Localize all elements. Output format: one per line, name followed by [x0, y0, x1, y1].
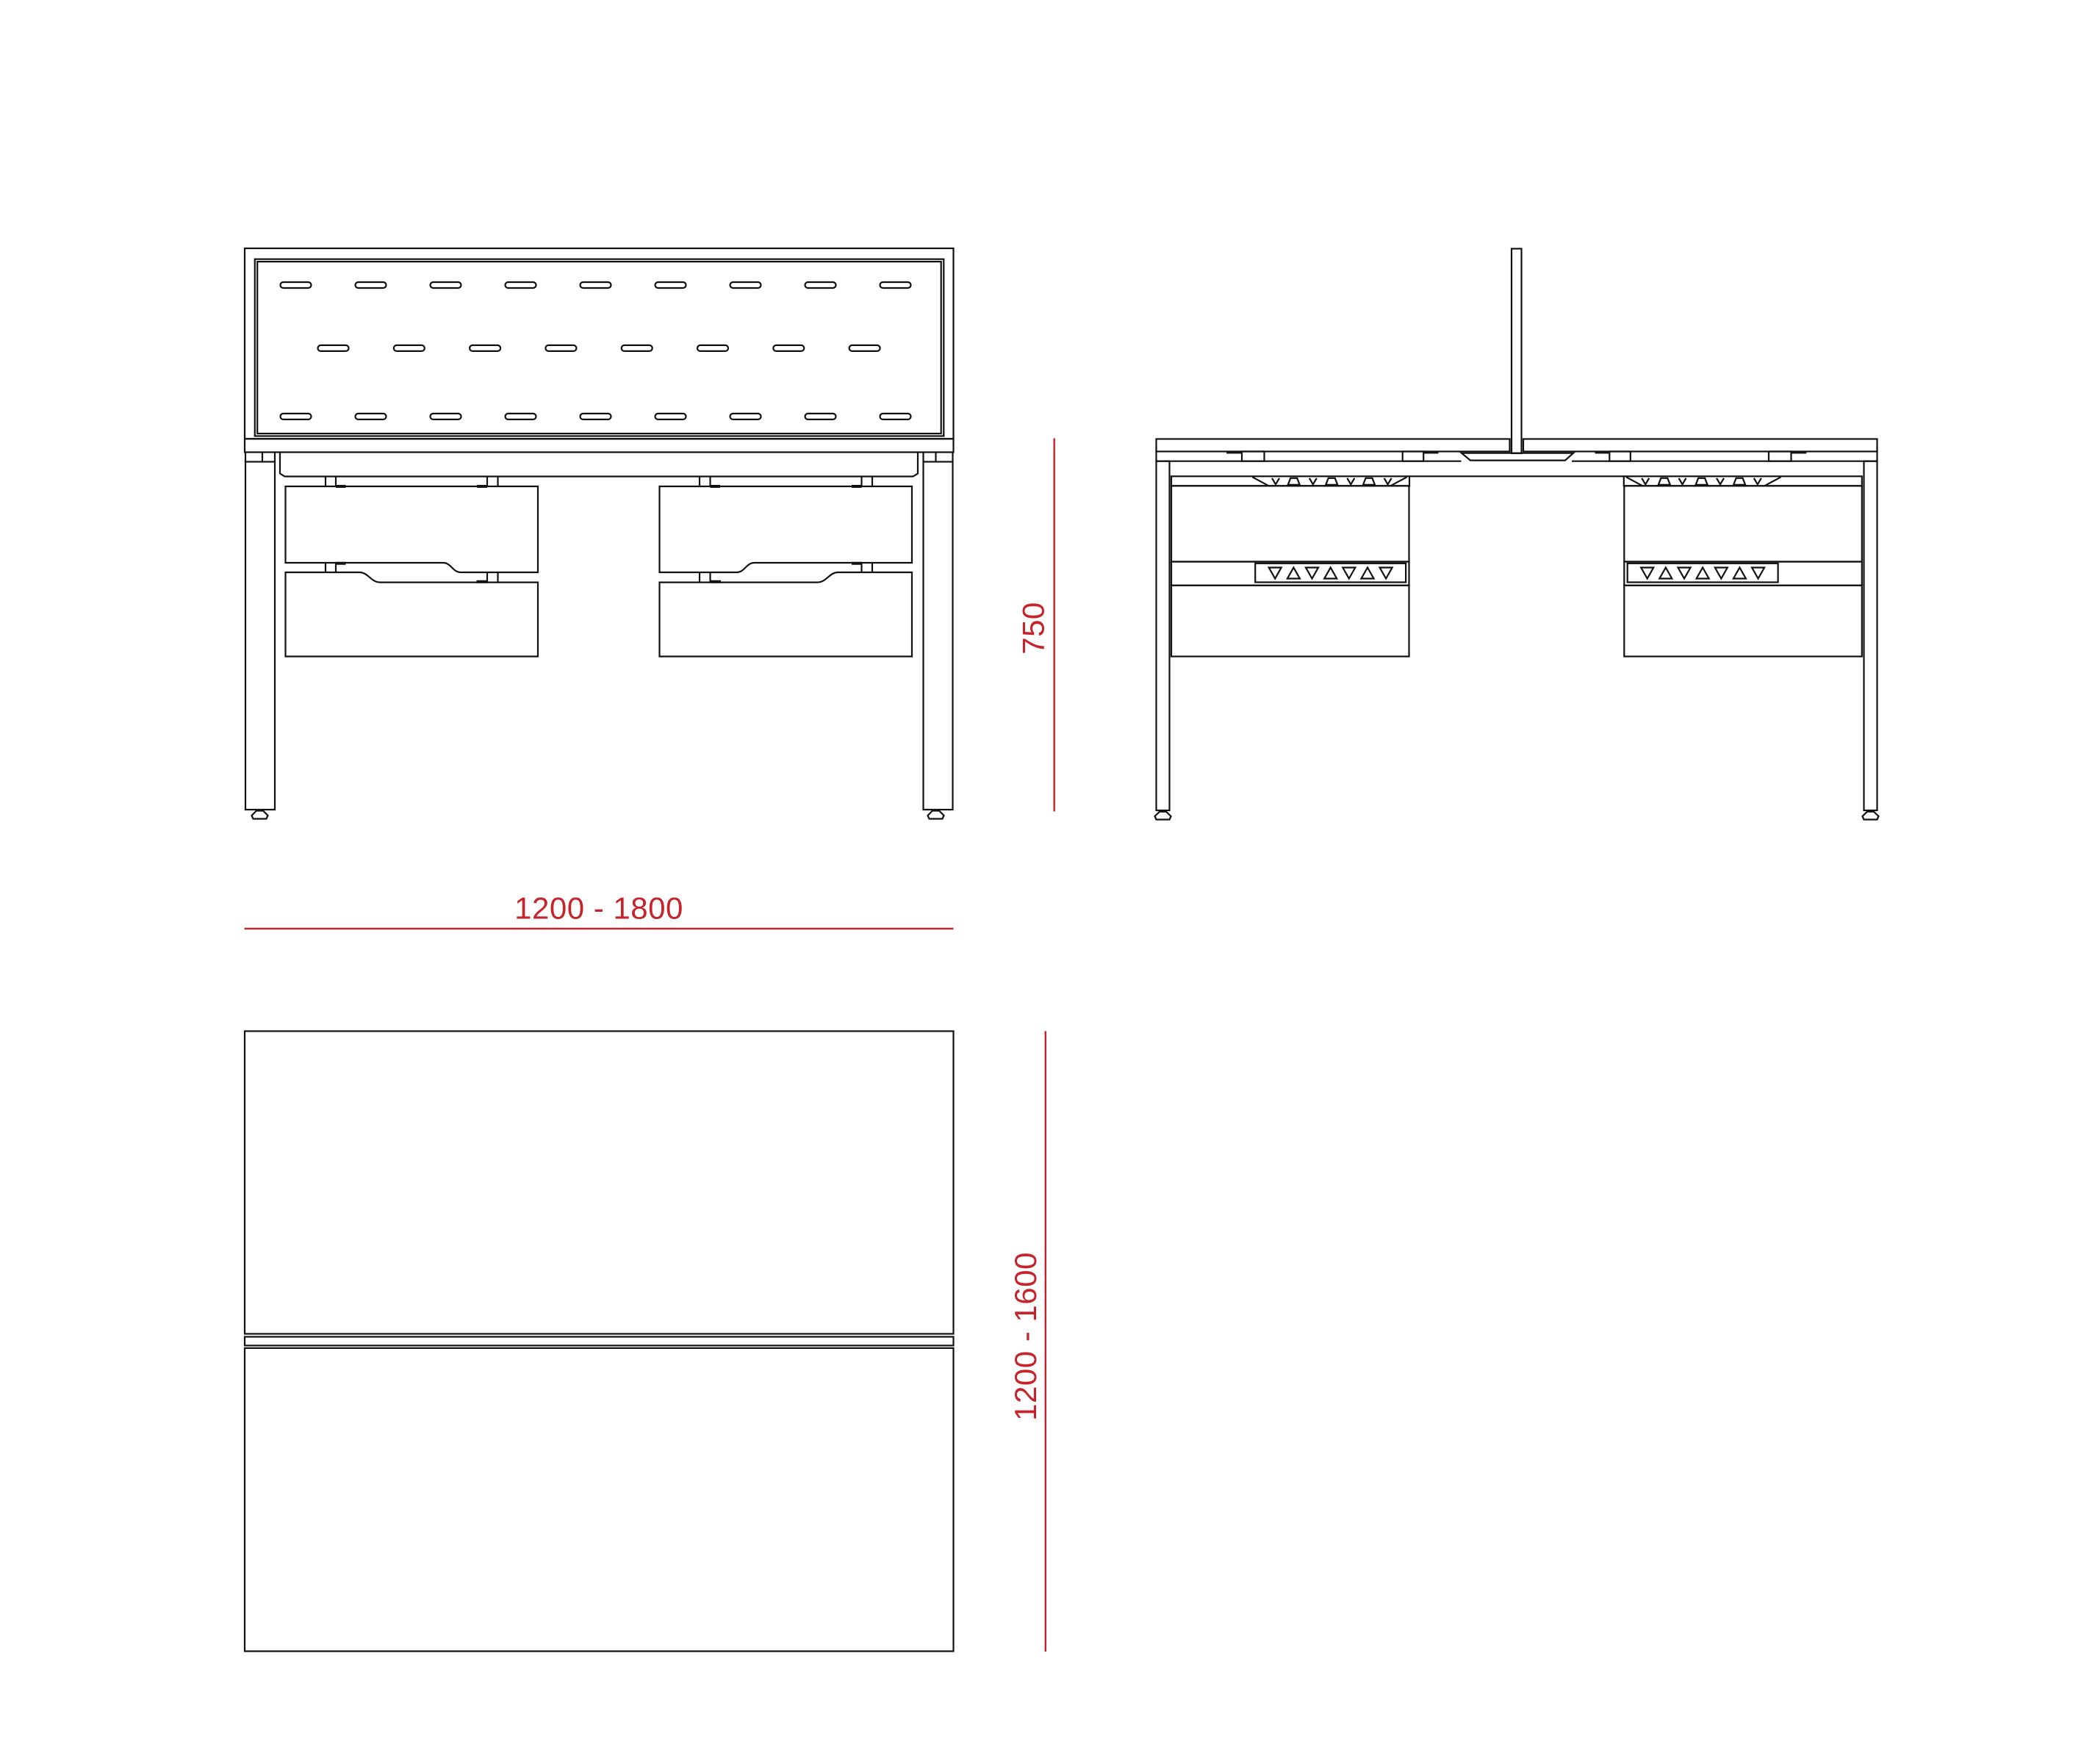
svg-text:1200 - 1800: 1200 - 1800: [514, 891, 683, 926]
svg-text:750: 750: [1016, 602, 1051, 655]
svg-text:1200 - 1600: 1200 - 1600: [1008, 1252, 1043, 1421]
